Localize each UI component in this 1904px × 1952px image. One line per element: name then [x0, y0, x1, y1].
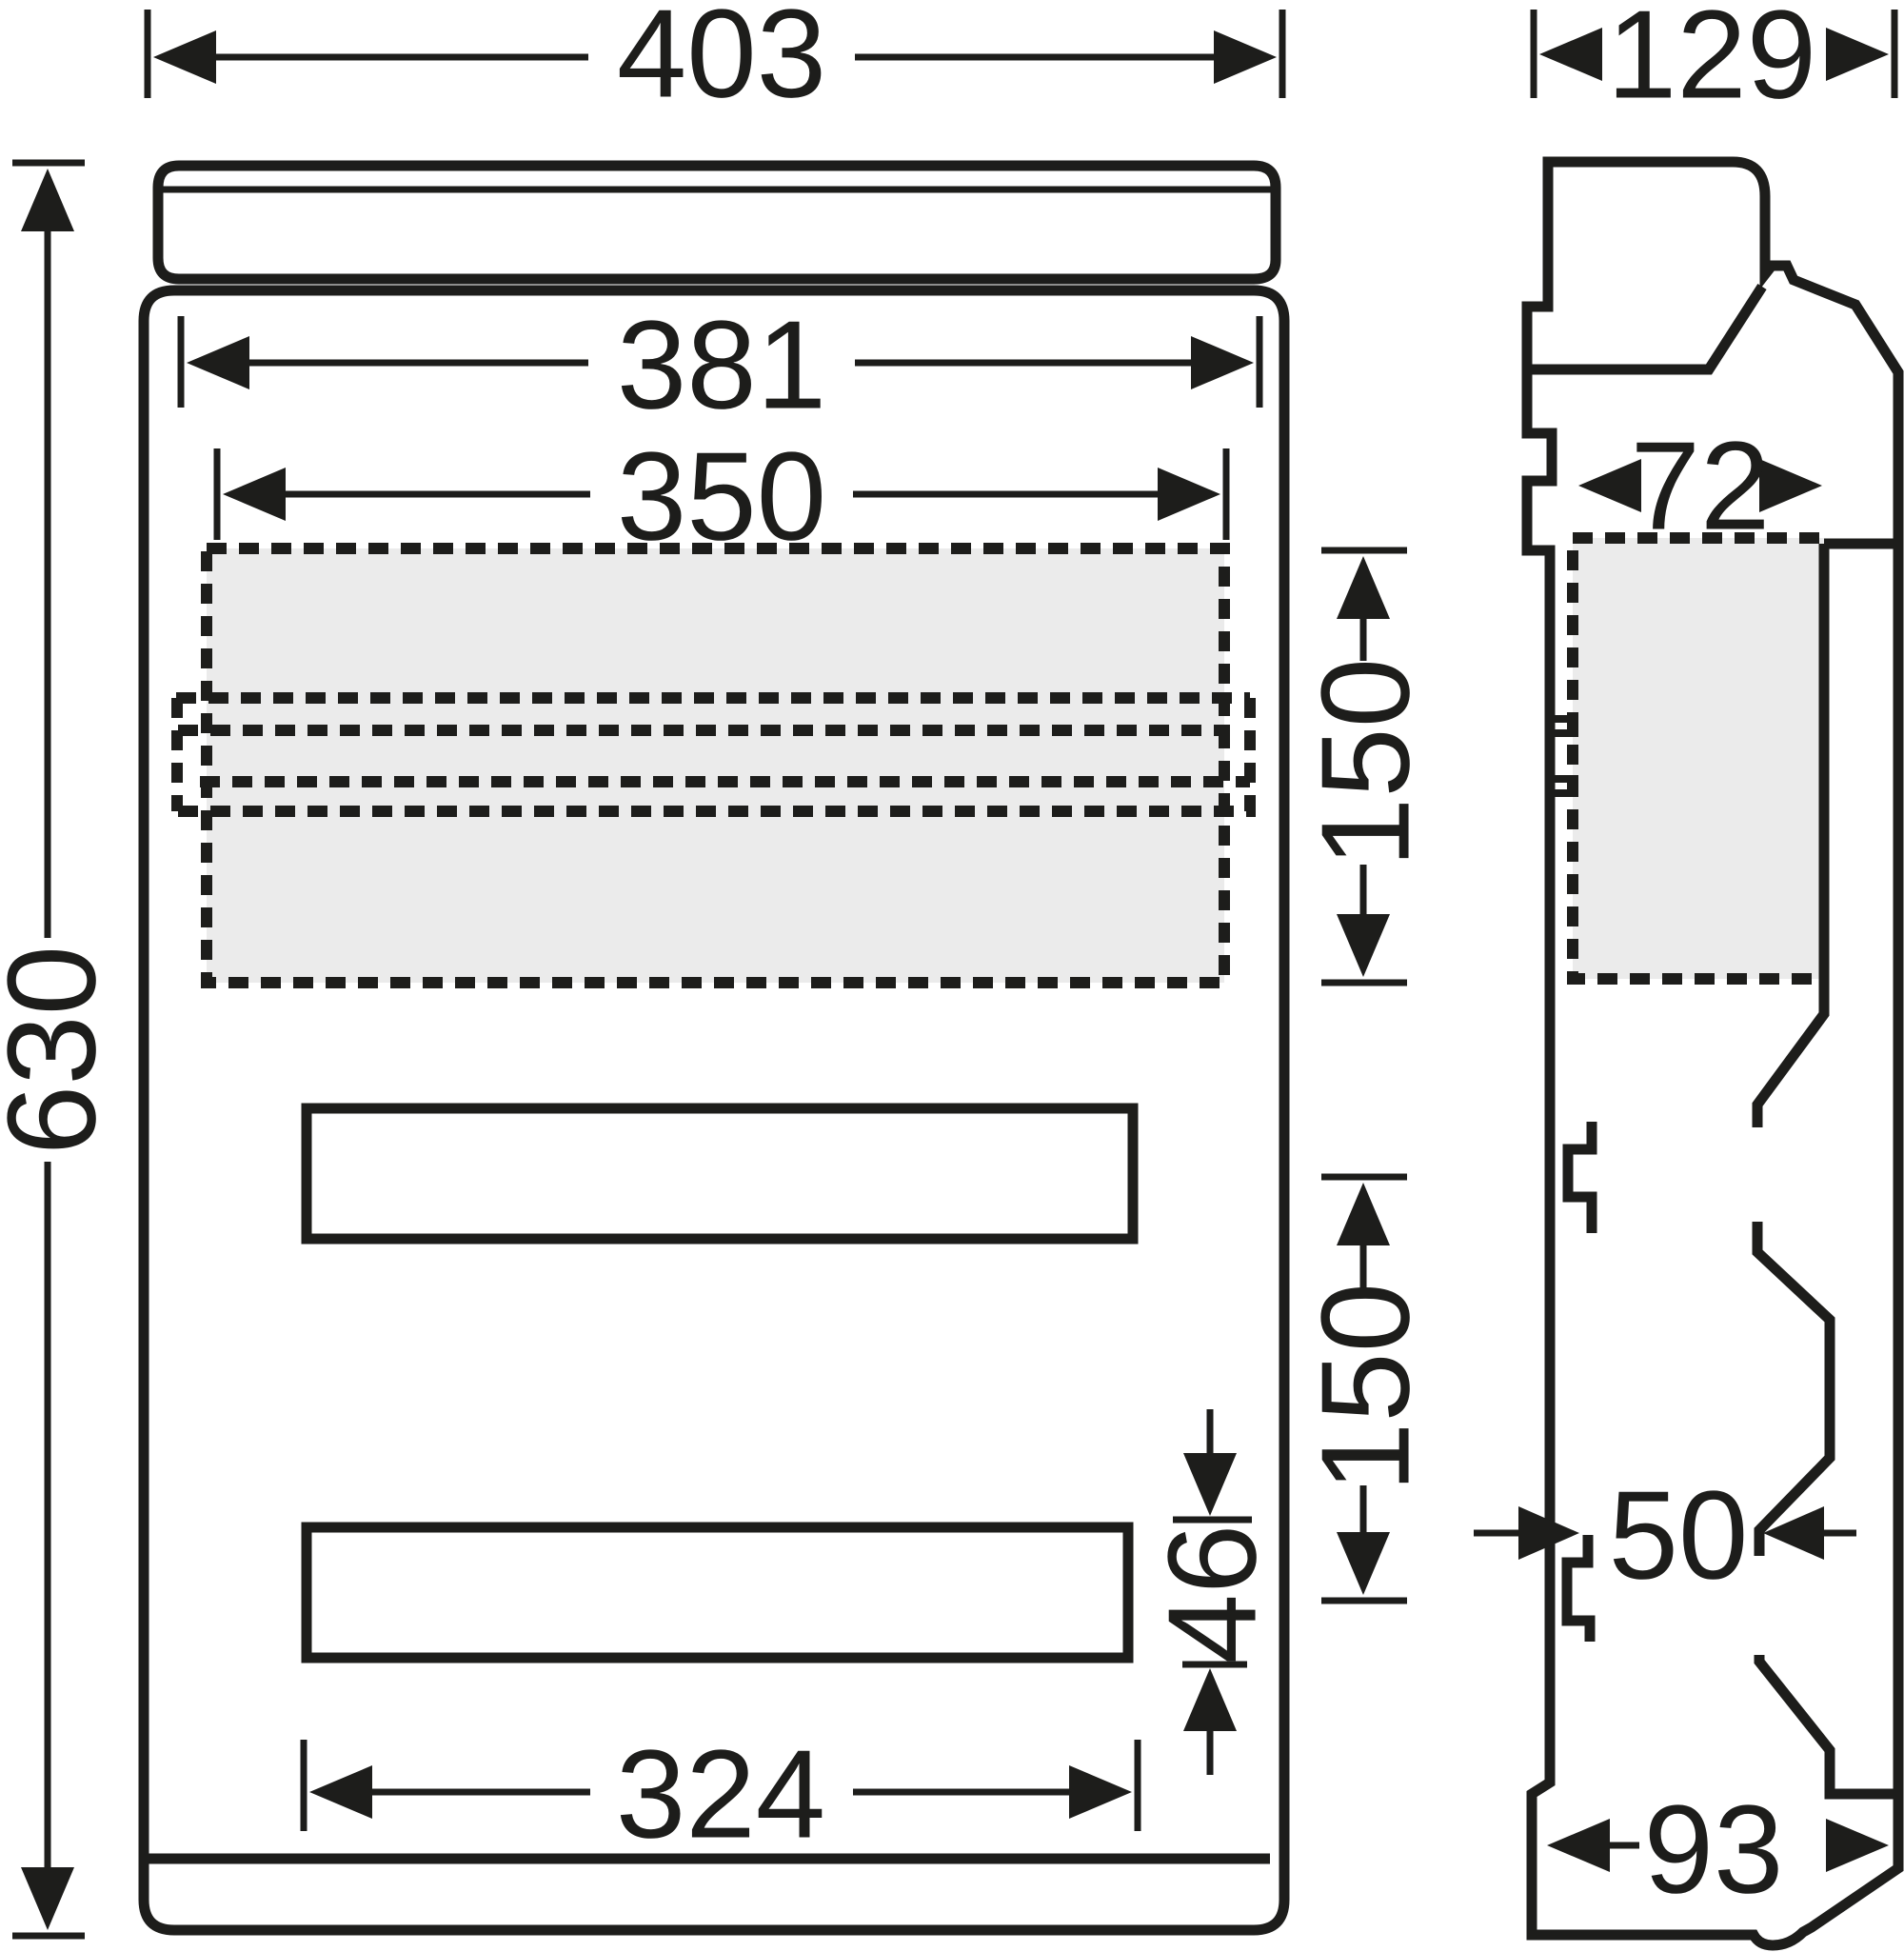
svg-text:150: 150: [1296, 1283, 1436, 1492]
svg-text:350: 350: [617, 427, 826, 567]
svg-text:381: 381: [617, 295, 826, 435]
svg-text:129: 129: [1607, 0, 1816, 125]
svg-text:93: 93: [1644, 1780, 1784, 1920]
svg-text:403: 403: [617, 0, 826, 124]
svg-text:324: 324: [616, 1724, 825, 1864]
svg-text:150: 150: [1296, 658, 1436, 867]
svg-text:50: 50: [1609, 1465, 1749, 1605]
svg-text:46: 46: [1142, 1524, 1282, 1664]
svg-text:72: 72: [1631, 416, 1771, 556]
svg-text:630: 630: [0, 946, 122, 1155]
